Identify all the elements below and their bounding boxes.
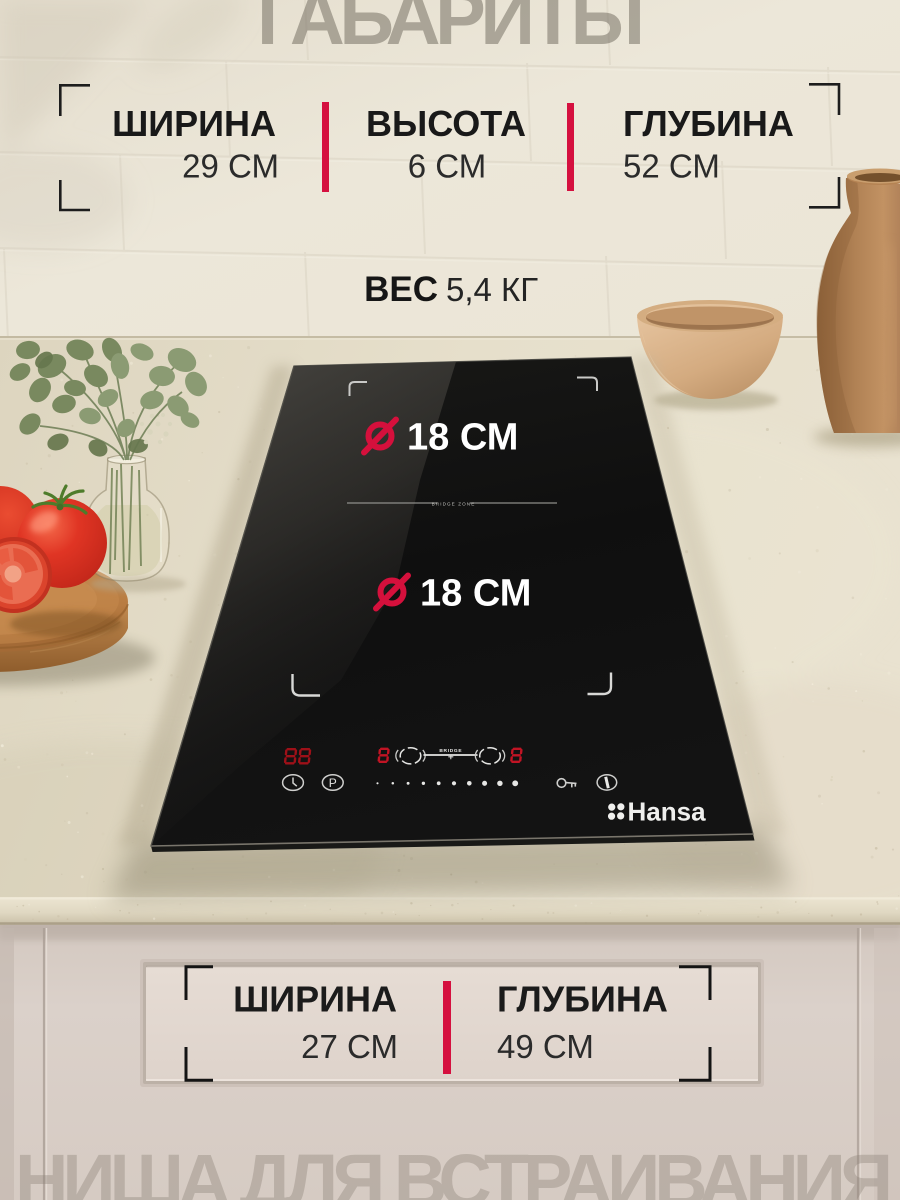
svg-text:29 СМ: 29 СМ [182, 148, 279, 185]
svg-text:6 СМ: 6 СМ [408, 148, 486, 185]
svg-text:18 СМ: 18 СМ [407, 417, 518, 459]
svg-text:ШИРИНА: ШИРИНА [112, 103, 276, 144]
svg-text:49 СМ: 49 СМ [497, 1028, 594, 1065]
svg-text:BRIDGE: BRIDGE [439, 748, 462, 754]
svg-text:27 СМ: 27 СМ [301, 1028, 398, 1065]
svg-text:ВЫСОТА: ВЫСОТА [366, 103, 526, 144]
svg-text:52 СМ: 52 СМ [623, 148, 720, 185]
svg-text:ШИРИНА: ШИРИНА [233, 979, 397, 1020]
svg-text:ГЛУБИНА: ГЛУБИНА [497, 979, 668, 1020]
svg-text:BRIDGE ZONE: BRIDGE ZONE [432, 501, 476, 506]
svg-text:НИША ДЛЯ ВСТРАИВАНИЯ: НИША ДЛЯ ВСТРАИВАНИЯ [15, 1139, 893, 1200]
svg-text:5,4 КГ: 5,4 КГ [446, 271, 538, 308]
svg-text:Hansa: Hansa [628, 797, 707, 827]
svg-text:ВЕС: ВЕС [364, 270, 438, 309]
svg-text:ГАБАРИТЫ: ГАБАРИТЫ [257, 0, 645, 61]
svg-text:P: P [329, 776, 337, 790]
svg-text:ГЛУБИНА: ГЛУБИНА [623, 103, 794, 144]
svg-text:18 СМ: 18 СМ [420, 573, 531, 615]
